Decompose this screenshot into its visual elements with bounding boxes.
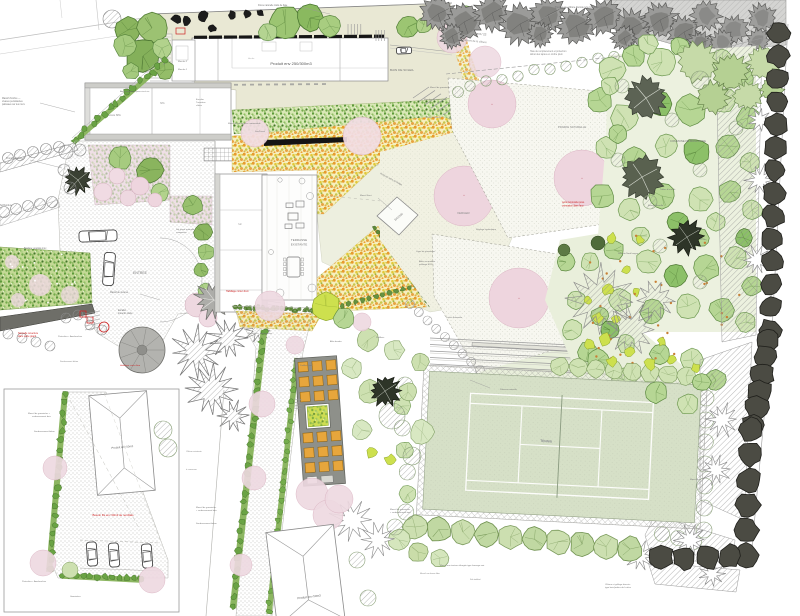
svg-text:petite luminosité poss.: petite luminosité poss. xyxy=(562,201,585,204)
svg-text:Tables d'activité: Tables d'activité xyxy=(660,188,676,191)
svg-text:Transition: Transition xyxy=(196,101,206,104)
svg-text:Profilbois bois: Profilbois bois xyxy=(300,365,312,367)
svg-text:soubassement bois: soubassement bois xyxy=(32,415,52,418)
svg-text:Massif de graminées +: Massif de graminées + xyxy=(28,412,51,415)
svg-text:Haie de remplacement et protec: Haie de remplacement et protection xyxy=(530,50,567,53)
svg-text:Massif de vivaces: Massif de vivaces xyxy=(110,292,129,294)
svg-text:Marches traverses bois: Marches traverses bois xyxy=(424,98,448,101)
svg-text:BAIN DE SOLEIL: BAIN DE SOLEIL xyxy=(390,68,414,72)
svg-text:Soutènement béton: Soutènement béton xyxy=(60,360,79,363)
svg-text:Réglage hydraulique: Réglage hydraulique xyxy=(476,228,497,231)
svg-text:Pelouse naturelle: Pelouse naturelle xyxy=(500,388,518,391)
svg-text:Massif vue basse libre: Massif vue basse libre xyxy=(420,573,441,575)
svg-text:Soubassement béton: Soubassement béton xyxy=(196,522,217,525)
svg-text:début des tapies en ombre plei: début des tapies en ombre plein xyxy=(530,53,563,56)
svg-text:Massif une texture allongée ty: Massif une texture allongée type fromage… xyxy=(440,564,485,567)
svg-text:ENTREE: ENTREE xyxy=(133,271,147,275)
svg-text:Massif de graminées: Massif de graminées xyxy=(196,506,217,509)
svg-text:Clôture et grillage discrets: Clôture et grillage discrets xyxy=(605,583,631,586)
svg-text:Massif d'hydrangeas commutable: Massif d'hydrangeas commutable xyxy=(228,122,261,125)
svg-text:Frêne naturelle traits de haie: Frêne naturelle traits de haie xyxy=(258,4,288,7)
svg-text:Soubassement béton: Soubassement béton xyxy=(34,430,55,433)
svg-text:+ soubassement bois: + soubassement bois xyxy=(390,511,412,514)
svg-text:Produit env 250/300m3: Produit env 250/300m3 xyxy=(270,61,312,66)
svg-text:Habillage scrits d'ten: Habillage scrits d'ten xyxy=(120,364,141,367)
svg-text:Pistachier + Amelanchier: Pistachier + Amelanchier xyxy=(22,580,46,583)
svg-text:Pistachier + Amelanchier: Pistachier + Amelanchier xyxy=(248,332,272,335)
svg-text:Pistachier + Amelanchier: Pistachier + Amelanchier xyxy=(58,335,82,338)
svg-text:Huche: Huche xyxy=(248,58,255,60)
svg-text:à conserver: à conserver xyxy=(186,468,197,471)
svg-text:Sol stabilisé: Sol stabilisé xyxy=(470,578,482,581)
svg-text:Marche 2: Marche 2 xyxy=(178,60,188,63)
svg-text:Bordure végétale inox: Bordure végétale inox xyxy=(24,247,47,250)
svg-text:Massif de graminées: Massif de graminées xyxy=(390,508,411,511)
svg-text:+: + xyxy=(491,102,493,106)
svg-text:Allée bandes: Allée bandes xyxy=(330,340,342,343)
svg-text:Habillage corten frem: Habillage corten frem xyxy=(226,290,249,293)
svg-text:Massif de graminées: Massif de graminées xyxy=(430,86,451,89)
svg-text:BUIS: BUIS xyxy=(700,239,706,241)
svg-text:PRAIRIE NATURELLE: PRAIRIE NATURELLE xyxy=(558,125,586,129)
svg-text:palissées sur les murs: palissées sur les murs xyxy=(2,103,26,106)
svg-text:EXISTANTE: EXISTANTE xyxy=(291,243,307,247)
svg-text:TERRASSE: TERRASSE xyxy=(291,238,307,242)
svg-text:Massif Sout: Massif Sout xyxy=(360,194,372,197)
svg-text:Sas/Lierré: Sas/Lierré xyxy=(255,130,266,133)
svg-text:Massif d'ombre —: Massif d'ombre — xyxy=(2,97,21,100)
svg-text:COMMUNE DE BOULOGNE: COMMUNE DE BOULOGNE xyxy=(670,139,706,143)
svg-text:orientation dans l'axe: orientation dans l'axe xyxy=(562,205,584,208)
svg-text:Préciser une clôture discrète: Préciser une clôture discrète type bross… xyxy=(555,6,606,9)
svg-text:SPA: SPA xyxy=(160,102,165,105)
svg-text:+ soubassement bois: + soubassement bois xyxy=(196,509,218,512)
svg-text:Besoin fils env 30m3 de rembla: Besoin fils env 30m3 de remblais xyxy=(92,513,134,517)
svg-text:hall: hall xyxy=(238,223,242,226)
svg-text:Clôture existante: Clôture existante xyxy=(186,450,202,453)
svg-text:Ligne de graminées: Ligne de graminées xyxy=(416,250,436,253)
svg-text:dans socle granit: dans socle granit xyxy=(18,335,36,338)
svg-text:TENNIS: TENNIS xyxy=(540,439,552,444)
svg-text:vivaces persistantes: vivaces persistantes xyxy=(2,100,24,103)
svg-text:Marche 1: Marche 1 xyxy=(178,68,188,71)
svg-text:Profilbois: Profilbois xyxy=(376,337,384,339)
svg-text:+: + xyxy=(518,296,520,300)
svg-text:Allée secondaire: Allée secondaire xyxy=(419,260,436,263)
svg-text:travertin claire: travertin claire xyxy=(118,312,133,315)
svg-text:compactée: compactée xyxy=(176,231,187,234)
svg-text:Escalier: Escalier xyxy=(196,98,204,101)
svg-text:chêne: chêne xyxy=(196,105,203,107)
svg-text:Abris paysagers pour vis-à-vis: Abris paysagers pour vis-à-vis xyxy=(120,90,150,93)
svg-text:Lisière flamande: Lisière flamande xyxy=(446,316,463,319)
svg-text:pellitage RVD: pellitage RVD xyxy=(419,263,433,266)
svg-text:Sol/bordure: Sol/bordure xyxy=(0,204,13,207)
svg-text:VERGER: VERGER xyxy=(457,211,471,215)
svg-text:Massif bois: Massif bois xyxy=(690,479,702,481)
svg-text:Frains naturelle: Frains naturelle xyxy=(426,116,442,119)
svg-text:Sol gravé naturelle: Sol gravé naturelle xyxy=(176,228,195,231)
svg-text:Graminées: Graminées xyxy=(70,595,82,598)
svg-text:Escalier: Escalier xyxy=(118,309,126,312)
svg-text:type bois/jardins de Lutèce: type bois/jardins de Lutèce xyxy=(605,586,632,589)
svg-text:+: + xyxy=(581,176,583,180)
svg-text:Prunus existant: Prunus existant xyxy=(6,157,22,160)
svg-text:Frains naturelle: Frains naturelle xyxy=(648,204,664,207)
svg-text:Détente Nord longue: Détente Nord longue xyxy=(618,252,639,255)
svg-text:+: + xyxy=(463,193,465,197)
